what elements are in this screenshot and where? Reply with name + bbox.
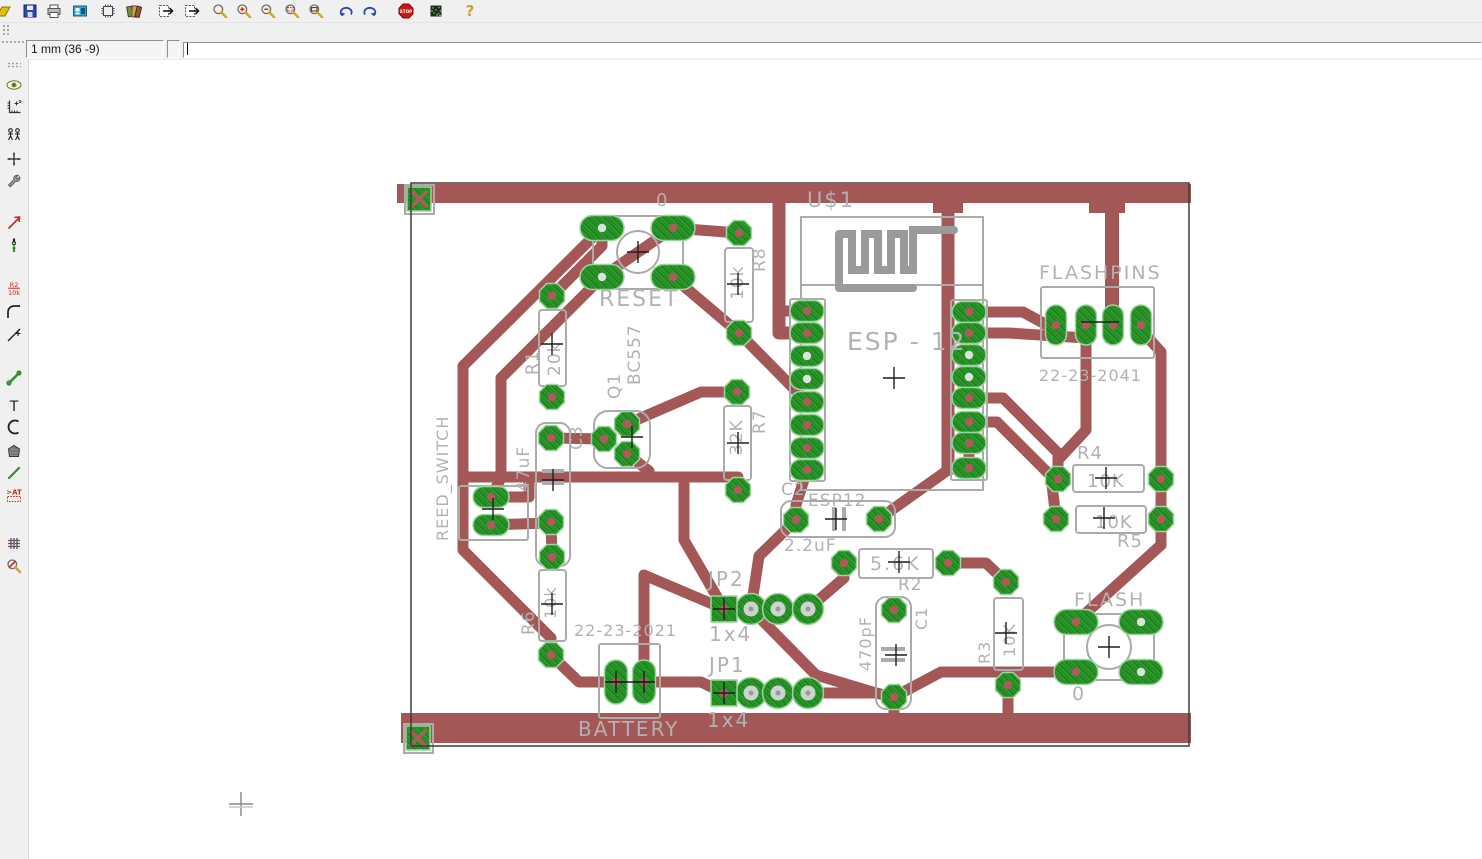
copper-trace[interactable] [894, 672, 1076, 697]
silk-label: 470pF [856, 616, 875, 671]
silk-label: 5.6K [870, 553, 921, 575]
zoom-redraw-icon [308, 3, 324, 19]
mark-tool-button[interactable] [3, 98, 25, 116]
svg-text:R2: R2 [10, 281, 19, 289]
split-tool-button[interactable] [3, 326, 25, 344]
svg-text:>AT: >AT [6, 489, 22, 497]
svg-text:T: T [9, 399, 19, 414]
silk-label: 2.2uF [784, 536, 837, 556]
zoom-fit-icon [212, 3, 228, 19]
save-button[interactable] [20, 1, 40, 21]
ratsnest-tool-button[interactable] [3, 534, 25, 552]
silk-label: BC557 [625, 324, 645, 385]
split-tool-icon [6, 327, 22, 343]
svg-text:?: ? [466, 3, 475, 19]
silk-label: 47uF [514, 446, 534, 492]
silk-label: R4 [1077, 443, 1103, 464]
silk-label: ESP12 [808, 491, 866, 511]
silk-label: R3 [975, 641, 994, 664]
delete-tool-icon [6, 215, 22, 231]
group-tool-icon [6, 127, 22, 143]
copper-trace[interactable] [627, 392, 737, 424]
miter-tool-icon [6, 304, 22, 320]
silk-label: C3 [567, 425, 587, 450]
stop-icon: STOP [398, 3, 414, 19]
coordinate-mode-box[interactable] [167, 40, 180, 58]
cam-icon [72, 3, 88, 19]
zoom-in-button[interactable] [234, 1, 254, 21]
open-icon [0, 3, 12, 19]
silk-label: 10K [1095, 512, 1133, 533]
delete-tool-button[interactable] [3, 214, 25, 232]
silk-label: U$1 [807, 188, 855, 212]
show-tool-button[interactable] [3, 76, 25, 94]
open-button[interactable] [0, 1, 14, 21]
silk-label: 22-23-2041 [1039, 366, 1142, 385]
ripup-tool-button[interactable] [3, 557, 25, 575]
silk-label: 32K [727, 419, 747, 455]
crosshair-cursor [229, 792, 253, 816]
route-tool-button[interactable] [3, 369, 25, 387]
silk-label: C1 [912, 607, 931, 630]
silk-label: Q1 [605, 373, 625, 399]
change-tool-button[interactable] [3, 172, 25, 190]
eagle-board-editor-window: STOP? 1 mm (36 -9) R210kT>AT 0U$1RESETES… [0, 0, 1482, 859]
copper-trace[interactable] [1141, 330, 1161, 479]
silk-label: RESET [599, 287, 680, 312]
silk-label: BATTERY [578, 717, 679, 741]
board-icon [100, 3, 116, 19]
silk-label: 0 [656, 190, 668, 211]
silk-label: REED_SWITCH [433, 416, 453, 541]
save-icon [22, 3, 38, 19]
print-button[interactable] [44, 1, 64, 21]
silk-label: R1 [523, 350, 543, 375]
svg-text:STOP: STOP [400, 9, 413, 14]
pcb-layout-svg[interactable]: 0U$1RESETESP - 12FLASHPINS22-23-2041C2ES… [29, 60, 1482, 859]
copper-pour[interactable] [397, 184, 1191, 203]
zo​om-select-button[interactable] [282, 1, 302, 21]
ratsnest-run-button[interactable] [426, 1, 446, 21]
undo-icon [338, 3, 354, 19]
board-canvas[interactable]: 0U$1RESETESP - 12FLASHPINS22-23-2041C2ES… [29, 60, 1482, 859]
text-tool-icon: T [6, 398, 22, 414]
arc-tool-icon [6, 419, 22, 435]
board-button[interactable] [98, 1, 118, 21]
value-tool-icon: R210k [6, 280, 22, 296]
export-img-icon [158, 3, 174, 19]
zoom-out-button[interactable] [258, 1, 278, 21]
pinswap-tool-icon [6, 237, 22, 253]
command-input[interactable] [183, 42, 1482, 58]
silk-label: 10k [541, 586, 560, 619]
move-tool-button[interactable] [3, 150, 25, 168]
top-toolbar: STOP? [0, 0, 1482, 23]
silk-label: FLASHPINS [1039, 262, 1162, 284]
stop-button[interactable]: STOP [396, 1, 416, 21]
silk-label: C2 [781, 480, 806, 500]
silk-label: ESP - 12 [847, 327, 966, 356]
redo-icon [362, 3, 378, 19]
statusbar-drag-grip[interactable] [0, 38, 26, 60]
status-command-bar: 1 mm (36 -9) [0, 38, 1482, 60]
silk-label: FLASH [1074, 589, 1145, 611]
palette-drag-grip[interactable] [7, 62, 21, 68]
wire-tool-button[interactable] [3, 464, 25, 482]
zoom-fit-button[interactable] [210, 1, 230, 21]
toolbar-spacer-row [0, 23, 1482, 38]
silk-label: R5 [1117, 531, 1143, 552]
left-tool-palette: R210kT>AT [0, 60, 29, 859]
silk-label: JP1 [707, 653, 746, 677]
zoom-out-icon [260, 3, 276, 19]
show-tool-icon [6, 77, 22, 93]
coordinate-display: 1 mm (36 -9) [26, 40, 164, 58]
copper-pour[interactable] [401, 713, 1191, 743]
silk-label: R6 [519, 610, 539, 635]
move-tool-icon [6, 151, 22, 167]
silk-label: 0 [1072, 683, 1086, 705]
silk-label: R7 [750, 409, 770, 434]
undo-button[interactable] [336, 1, 356, 21]
pinswap-tool-button[interactable] [3, 236, 25, 254]
zoom-in-icon [236, 3, 252, 19]
silk-label: JP2 [706, 567, 745, 591]
silk-label: 1x4 [707, 708, 750, 732]
change-tool-icon [6, 173, 22, 189]
wire-tool-icon [6, 465, 22, 481]
toolbar-drag-grip[interactable] [2, 24, 9, 37]
silk-label: R2 [898, 575, 923, 595]
cam-button[interactable] [70, 1, 90, 21]
silk-label: 1x4 [709, 622, 752, 646]
esp-antenna-silk [839, 230, 954, 288]
ripup-tool-icon [6, 558, 22, 574]
mark-tool-icon [6, 99, 22, 115]
polygon-tool-button[interactable] [3, 442, 25, 460]
silk-label: R8 [750, 247, 770, 272]
miter-tool-button[interactable] [3, 303, 25, 321]
value-tool-button[interactable]: R210k [3, 279, 25, 297]
help-button[interactable]: ? [460, 1, 480, 21]
export-net-button[interactable] [182, 1, 202, 21]
group-tool-button[interactable] [3, 126, 25, 144]
library-button[interactable] [124, 1, 144, 21]
ratsnest-run-icon [428, 3, 444, 19]
zoom-redraw-button[interactable] [306, 1, 326, 21]
text-tool-button[interactable]: T [3, 397, 25, 415]
help-icon: ? [462, 3, 478, 19]
polygon-tool-icon [6, 443, 22, 459]
redo-button[interactable] [360, 1, 380, 21]
print-icon [46, 3, 62, 19]
silk-label: 22-23-2021 [574, 621, 677, 640]
silk-label: 10K [1000, 623, 1019, 657]
export-net-icon [184, 3, 200, 19]
route-tool-icon [6, 370, 22, 386]
ratsnest-tool-icon [6, 535, 22, 551]
library-icon [126, 3, 142, 19]
text-caret [187, 43, 188, 55]
silk-label: 20k [545, 342, 565, 376]
export-img-button[interactable] [156, 1, 176, 21]
svg-text:10k: 10k [8, 289, 20, 296]
attribute-tool-button[interactable]: >AT [3, 486, 25, 504]
attribute-tool-icon: >AT [6, 487, 22, 503]
arc-tool-button[interactable] [3, 418, 25, 436]
zo​om-select-icon [284, 3, 300, 19]
